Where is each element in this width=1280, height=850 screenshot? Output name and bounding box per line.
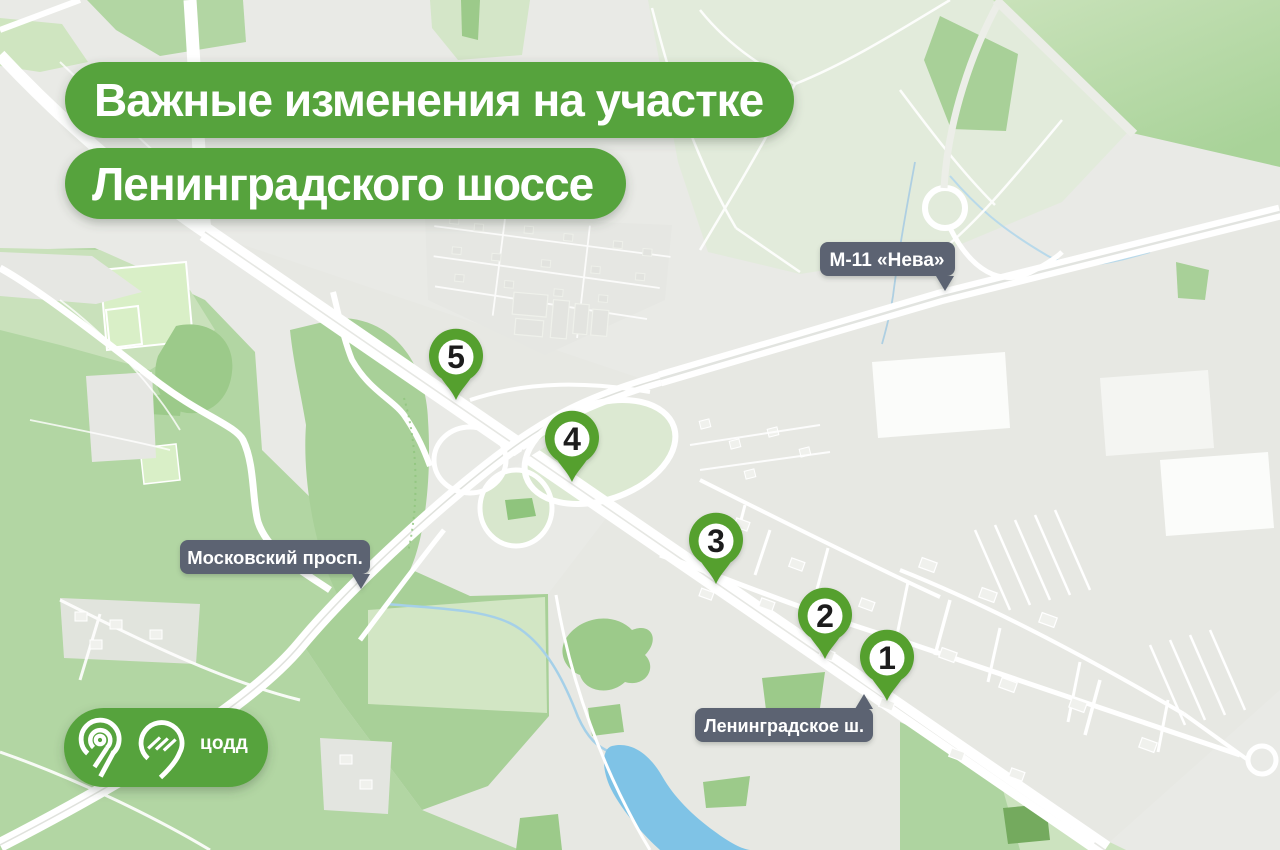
svg-text:4: 4 xyxy=(563,421,581,457)
svg-text:Важные изменения на участке: Важные изменения на участке xyxy=(94,74,764,126)
svg-text:3: 3 xyxy=(707,523,725,559)
svg-text:5: 5 xyxy=(447,339,465,375)
svg-text:М-11 «Нева»: М-11 «Нева» xyxy=(830,250,945,271)
svg-text:Ленинградского шоссе: Ленинградского шоссе xyxy=(92,158,594,210)
svg-text:Ленинградское ш.: Ленинградское ш. xyxy=(704,716,864,736)
svg-text:1: 1 xyxy=(878,640,896,676)
svg-text:Московский просп.: Московский просп. xyxy=(187,547,363,568)
svg-text:2: 2 xyxy=(816,598,834,634)
svg-text:цодд: цодд xyxy=(200,733,248,754)
